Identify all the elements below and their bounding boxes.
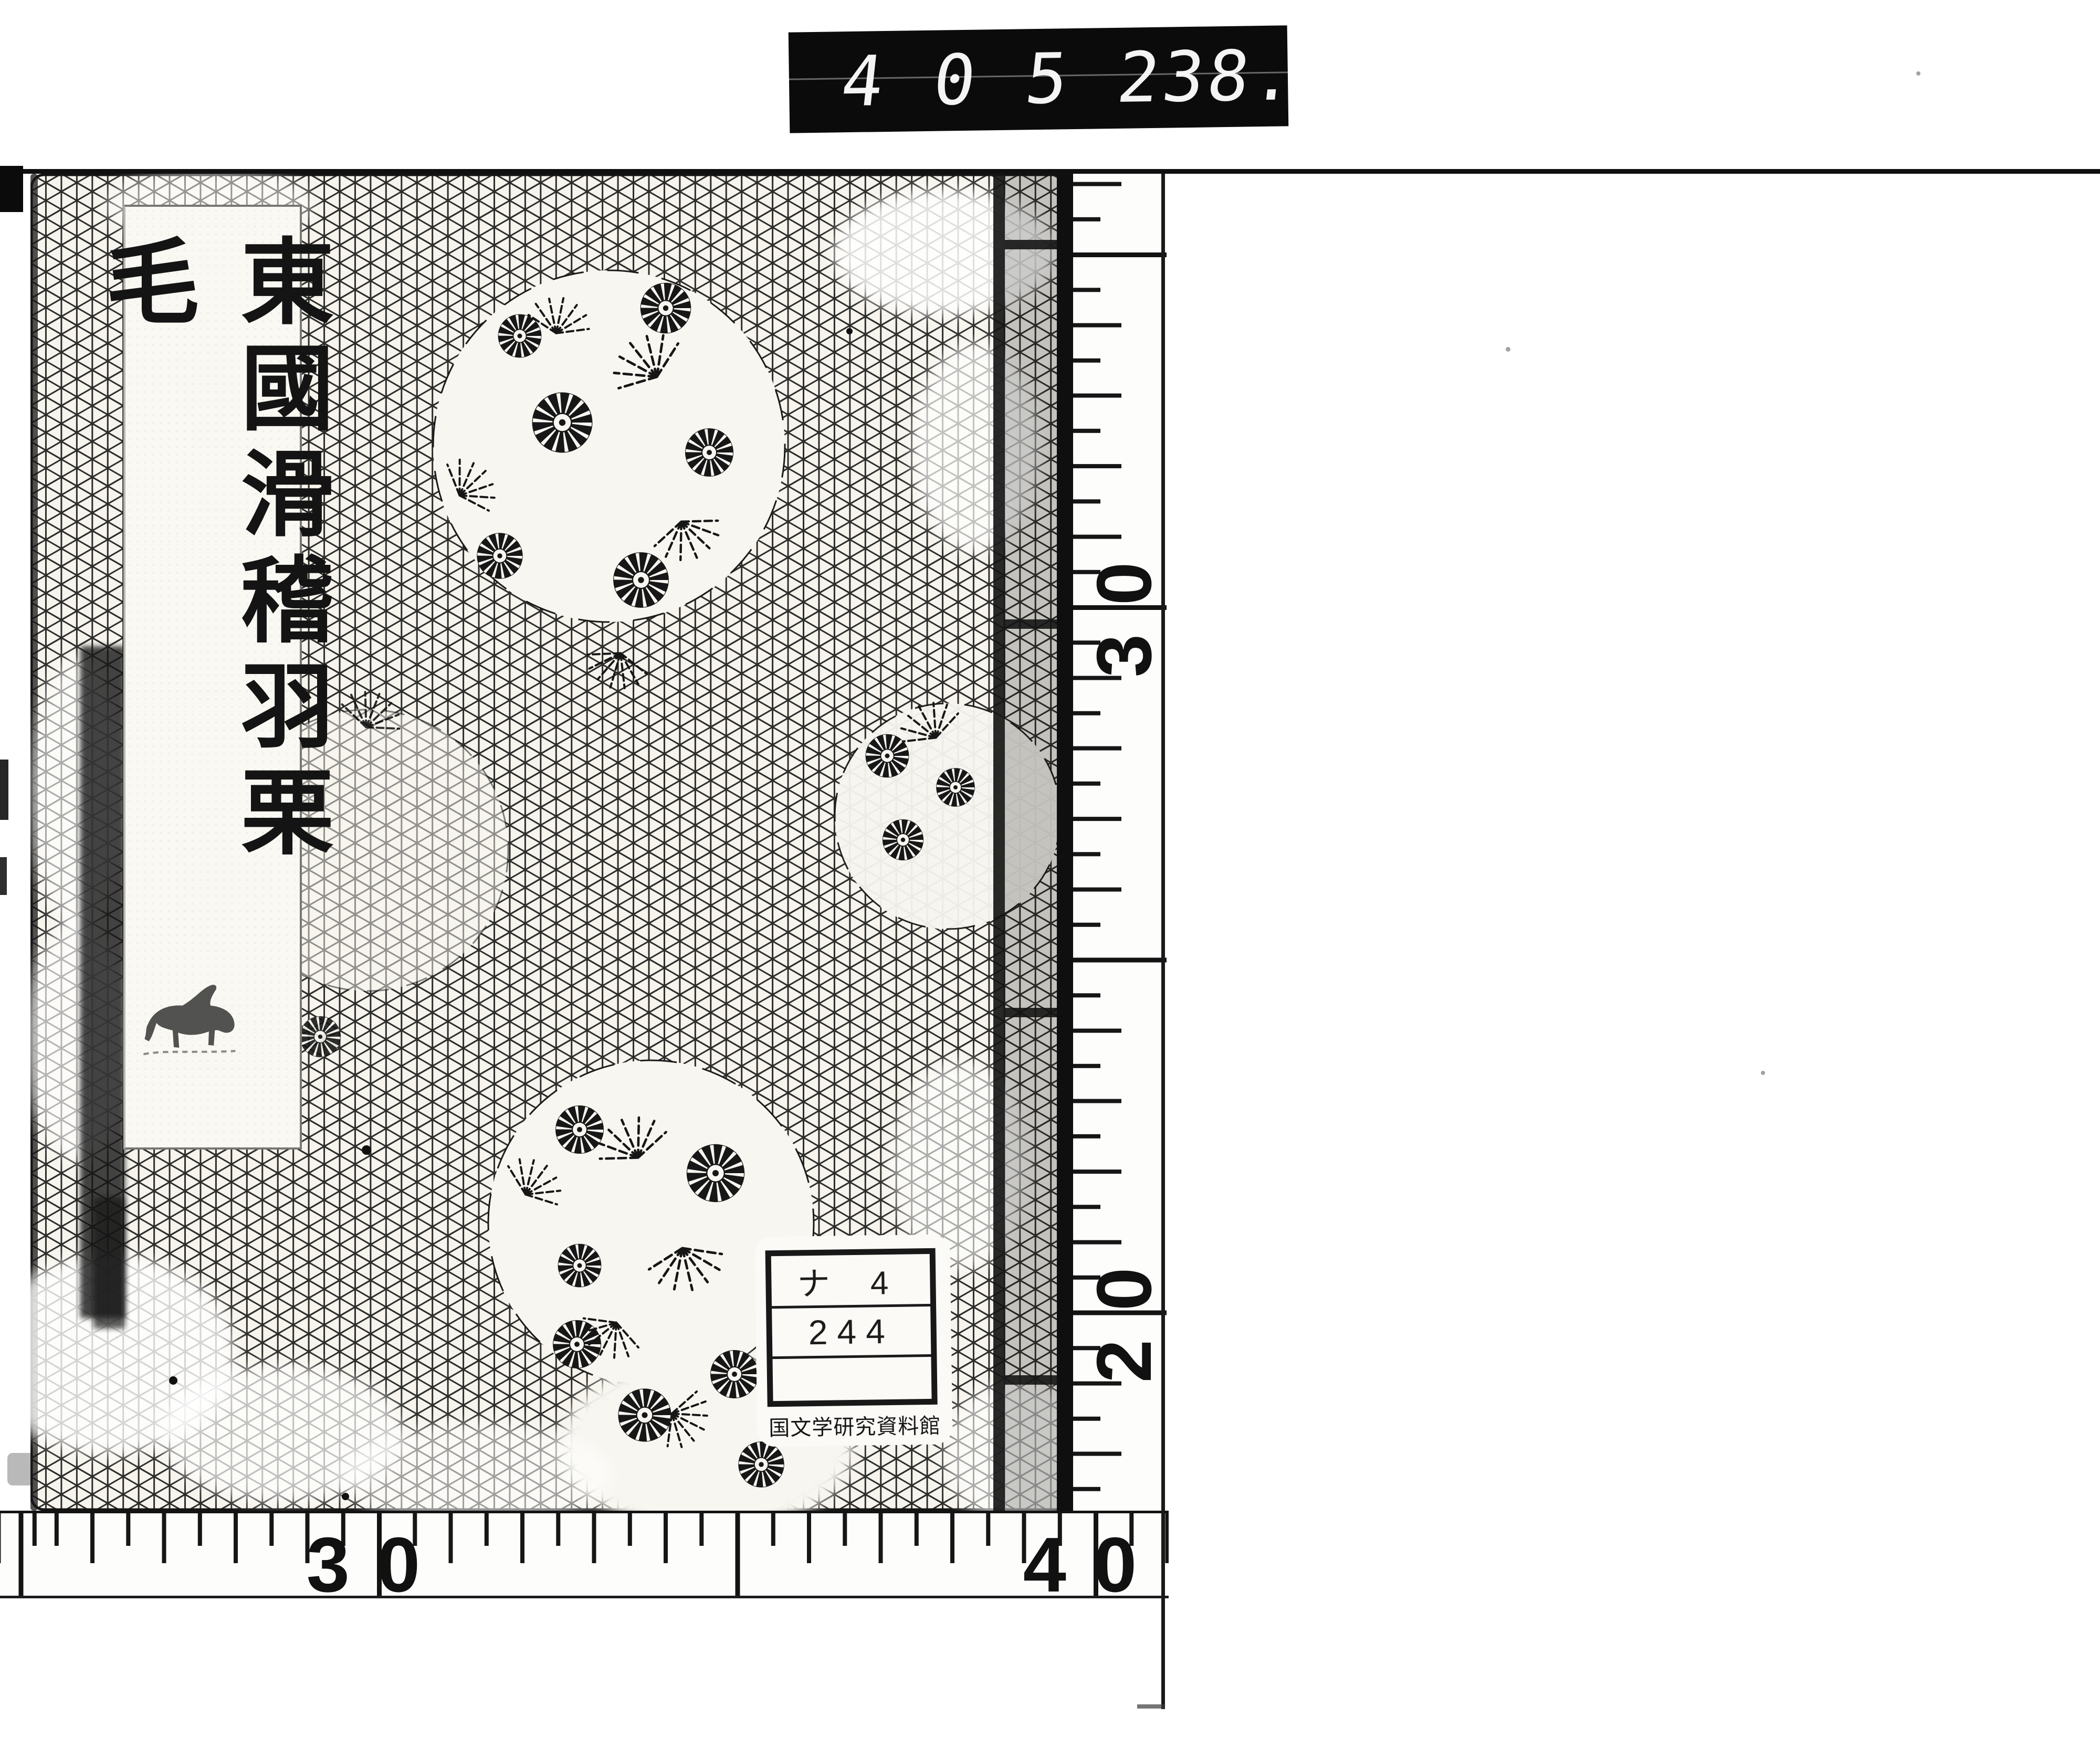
alignment-line bbox=[0, 169, 2100, 174]
call-number-label: ナ 4 244 国文学研究資料館 bbox=[754, 1234, 953, 1447]
call-number-box: ナ 4 244 bbox=[765, 1248, 938, 1407]
page-edge-mark bbox=[0, 857, 7, 895]
call-number-row: ナ 4 bbox=[771, 1254, 930, 1309]
scanned-book-page: 405 238. bbox=[0, 0, 2100, 1739]
ruler-edge-line-end bbox=[1137, 1704, 1164, 1709]
horizontal-ruler: 30 40 bbox=[0, 1511, 1169, 1598]
counter-right-value: 238. bbox=[1114, 35, 1302, 119]
call-number-row bbox=[772, 1357, 931, 1401]
title-slip: 東國滑稽羽栗毛 bbox=[123, 205, 302, 1150]
frame-counter-display: 405 238. bbox=[789, 25, 1289, 133]
call-number-row: 244 bbox=[772, 1306, 931, 1359]
vertical-ruler-label-20: 20 bbox=[1088, 1232, 1161, 1389]
scan-speck bbox=[1916, 71, 1920, 76]
horizontal-ruler-label-30: 30 bbox=[272, 1521, 482, 1598]
institution-name: 国文学研究資料館 bbox=[757, 1408, 953, 1441]
spine-fold-line bbox=[993, 174, 1005, 1511]
horse-figure-icon bbox=[132, 973, 253, 1065]
book-title: 東國滑稽羽栗毛 bbox=[78, 233, 348, 968]
book-right-edge bbox=[1057, 174, 1073, 1511]
page-edge-mark bbox=[0, 760, 8, 820]
counter-left-value: 405 bbox=[837, 38, 1122, 123]
turned-edge-strip bbox=[1005, 174, 1057, 1511]
ruler-edge-line bbox=[1161, 174, 1165, 1709]
horizontal-ruler-label-40: 40 bbox=[989, 1521, 1169, 1598]
book-cover: 東國滑稽羽栗毛 ナ 4 244 国文学研究資料館 bbox=[30, 174, 1073, 1511]
alignment-line-end-mark bbox=[0, 166, 23, 212]
scan-speck bbox=[1761, 1071, 1765, 1075]
vertical-ruler-label-30: 30 bbox=[1088, 526, 1161, 684]
scan-speck bbox=[1506, 347, 1510, 352]
vertical-ruler: 30 20 bbox=[1073, 174, 1167, 1511]
